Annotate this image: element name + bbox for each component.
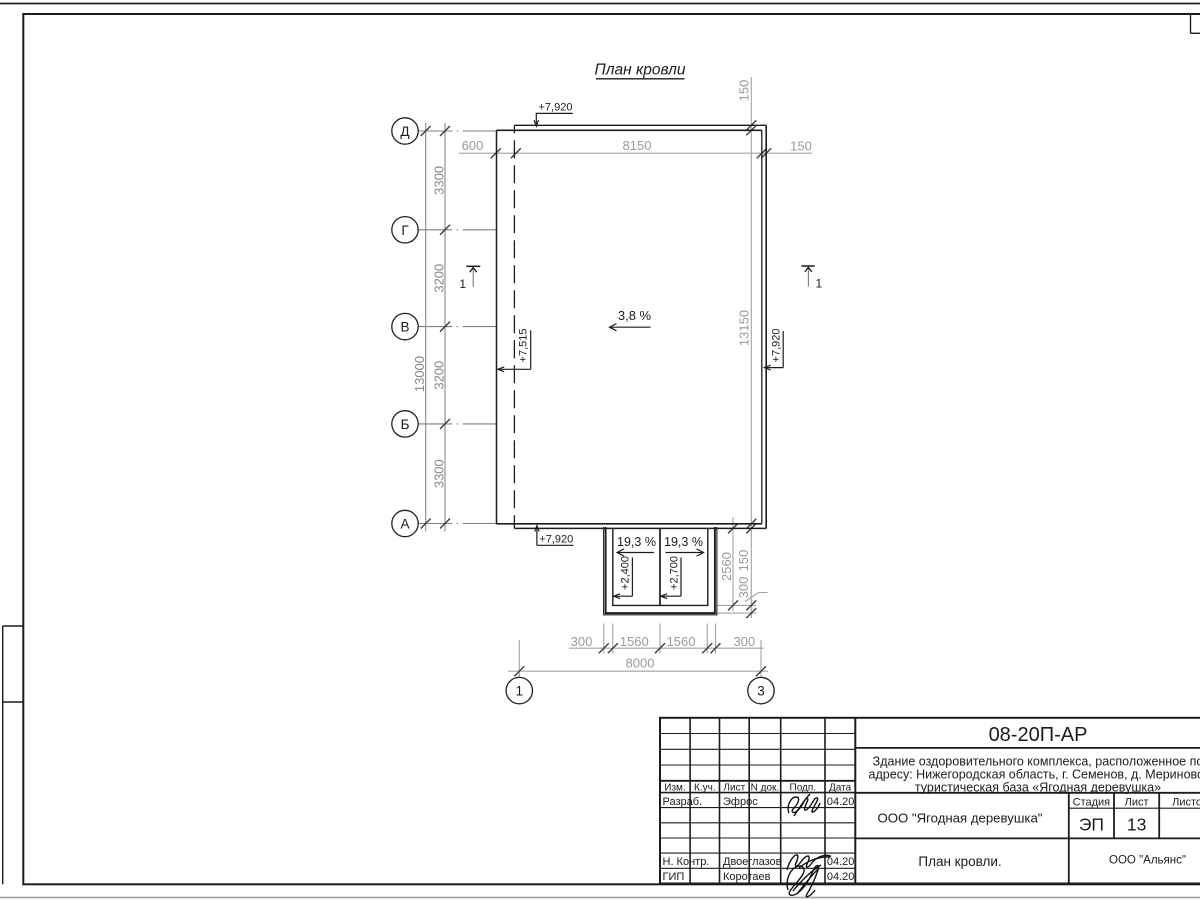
svg-text:+7,920: +7,920 — [771, 329, 783, 363]
svg-text:Изм.: Изм. — [664, 782, 685, 793]
svg-text:13: 13 — [1127, 815, 1146, 835]
svg-text:13000: 13000 — [412, 356, 427, 392]
svg-text:План кровли: План кровли — [595, 62, 686, 79]
svg-text:Н. Контр.: Н. Контр. — [663, 856, 710, 868]
svg-text:ООО "Ягодная деревушка": ООО "Ягодная деревушка" — [878, 811, 1043, 826]
svg-text:150: 150 — [736, 550, 751, 572]
svg-text:04.20: 04.20 — [827, 796, 855, 808]
svg-text:Лист: Лист — [1125, 797, 1149, 809]
svg-text:04.20: 04.20 — [827, 871, 855, 883]
svg-text:туристическая база «Ягодная де: туристическая база «Ягодная деревушка» — [915, 781, 1161, 795]
svg-text:150: 150 — [736, 80, 751, 102]
svg-text:План кровли.: План кровли. — [918, 854, 1001, 869]
svg-text:19,3 %: 19,3 % — [617, 535, 656, 549]
svg-text:Д: Д — [400, 124, 409, 139]
svg-text:В: В — [400, 320, 409, 335]
svg-text:1560: 1560 — [667, 634, 696, 649]
svg-text:8000: 8000 — [626, 656, 655, 671]
svg-text:8150: 8150 — [623, 138, 652, 153]
svg-text:150: 150 — [790, 139, 812, 154]
svg-text:04.20: 04.20 — [827, 856, 855, 868]
svg-text:+7,920: +7,920 — [539, 102, 573, 114]
svg-text:Эфрос: Эфрос — [723, 796, 758, 808]
svg-text:08-20П-АР: 08-20П-АР — [989, 724, 1088, 746]
svg-text:N док.: N док. — [751, 782, 780, 793]
svg-text:Двоеглазов: Двоеглазов — [723, 856, 782, 868]
svg-text:600: 600 — [462, 138, 484, 153]
svg-text:19,3 %: 19,3 % — [664, 535, 703, 549]
svg-text:3300: 3300 — [431, 459, 446, 488]
svg-text:300: 300 — [733, 634, 755, 649]
svg-text:1560: 1560 — [620, 634, 649, 649]
svg-text:ООО "Альянс": ООО "Альянс" — [1109, 855, 1186, 867]
svg-text:2560: 2560 — [719, 552, 734, 581]
svg-text:Стадия: Стадия — [1073, 797, 1111, 809]
svg-text:1: 1 — [459, 277, 466, 291]
svg-text:300: 300 — [571, 634, 593, 649]
svg-text:3,8 %: 3,8 % — [618, 308, 652, 323]
svg-text:Лист: Лист — [723, 782, 745, 793]
svg-text:1: 1 — [516, 684, 524, 699]
svg-text:Листов: Листов — [1172, 797, 1200, 809]
svg-text:Дата: Дата — [829, 782, 852, 793]
svg-text:Б: Б — [401, 417, 410, 432]
svg-text:А: А — [400, 517, 409, 532]
svg-text:Разраб.: Разраб. — [663, 796, 703, 808]
svg-text:+7,920: +7,920 — [539, 534, 573, 546]
svg-text:ГИП: ГИП — [663, 871, 685, 883]
svg-text:1: 1 — [816, 277, 823, 291]
svg-text:К.уч.: К.уч. — [694, 782, 716, 793]
svg-text:13150: 13150 — [736, 310, 751, 346]
svg-text:Здание оздоровительного компле: Здание оздоровительного комплекса, распо… — [873, 755, 1200, 769]
svg-text:ЭП: ЭП — [1079, 815, 1104, 835]
svg-text:Г: Г — [401, 223, 409, 238]
svg-text:3: 3 — [757, 684, 765, 699]
svg-text:3200: 3200 — [431, 264, 446, 293]
svg-text:Коротаев: Коротаев — [723, 871, 771, 883]
svg-text:+7,515: +7,515 — [518, 329, 530, 363]
svg-text:адресу: Нижегородская область,: адресу: Нижегородская область, г. Семено… — [869, 768, 1200, 782]
svg-text:300: 300 — [736, 577, 751, 599]
svg-text:Подп.: Подп. — [790, 782, 817, 793]
svg-text:3200: 3200 — [431, 361, 446, 390]
svg-text:+2,700: +2,700 — [668, 556, 680, 590]
svg-text:3300: 3300 — [431, 166, 446, 195]
svg-text:+2,400: +2,400 — [620, 556, 632, 590]
